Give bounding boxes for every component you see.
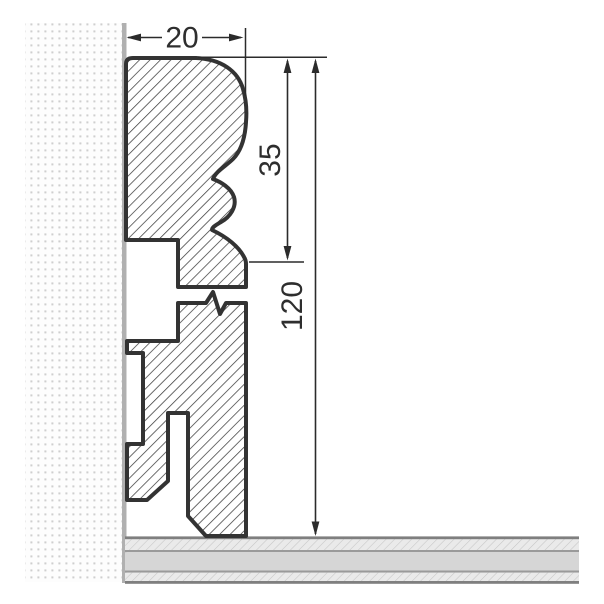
floor-separator-line [125,571,579,573]
profile-bottom-section [127,292,246,536]
arrow-down-icon [312,522,320,537]
dim-total-height [312,59,320,537]
floor-bottom-layer [125,573,579,581]
arrow-down-icon [284,246,292,261]
floor [125,536,579,583]
arrow-up-icon [284,59,292,74]
floor-bottom-edge [125,581,579,584]
wall-plaster-area [25,23,122,582]
floor-middle-layer [125,552,579,570]
skirting-section-svg: 20 35 120 [0,0,604,604]
technical-drawing: 20 35 120 [0,0,604,604]
arrow-right-icon [229,34,244,42]
dim-width-label: 20 [165,22,198,55]
arrow-up-icon [312,59,320,74]
dim-total-height-label: 120 [276,281,309,331]
floor-separator-line [125,550,579,552]
dim-upper-height-label: 35 [254,143,287,176]
arrow-left-icon [127,34,142,42]
floor-top-edge [125,536,579,539]
floor-screed-top-layer [125,539,579,550]
profile-top-section [126,58,246,287]
